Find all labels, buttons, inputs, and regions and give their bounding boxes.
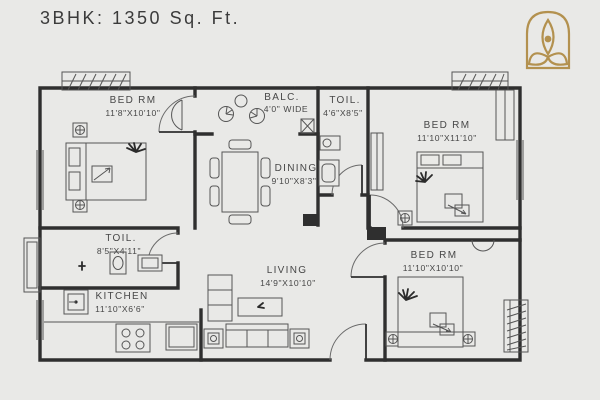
floorplan-page: 3BHK: 1350 Sq. Ft. — [0, 0, 600, 400]
bed-icon — [66, 143, 146, 200]
sink-icon — [64, 290, 88, 314]
wardrobe — [496, 90, 514, 140]
room-dims-dining: 9'10"X8'3" — [271, 176, 316, 186]
room-dims-kitchen: 11'10"X6'6" — [95, 304, 145, 314]
wardrobe — [371, 133, 383, 190]
room-dims-living: 14'9"X10'10" — [260, 278, 316, 288]
washbasin-icon — [138, 255, 162, 271]
doors — [148, 96, 403, 360]
room-label-bedroom-2: BED RM — [424, 120, 471, 131]
tap-icon — [79, 262, 85, 270]
tv-unit — [208, 275, 232, 321]
coffee-table-icon — [238, 298, 282, 316]
sofa-icon — [226, 324, 288, 347]
washbasin-icon — [320, 136, 340, 150]
room-label-toilet-2: TOIL. — [105, 233, 136, 244]
side-table — [290, 329, 309, 348]
floor-plan: BED RM 11'8"X10'10" BALC. 4'0" WIDE TOIL… — [0, 0, 600, 400]
room-label-bedroom-3: BED RM — [411, 250, 458, 261]
room-dims-bedroom-3: 11'10"X10'10" — [403, 263, 464, 273]
bed-icon — [398, 277, 463, 347]
duct-shaft-left — [24, 238, 40, 292]
room-label-bedroom-1: BED RM — [110, 95, 157, 106]
room-label-living: LIVING — [267, 265, 308, 276]
door-main-entrance — [330, 324, 366, 360]
wardrobe — [172, 100, 182, 130]
balcony-chairs-icon — [219, 95, 265, 124]
room-dims-toilet-2: 8'5"X4'11" — [97, 246, 141, 256]
room-label-kitchen: KITCHEN — [96, 291, 149, 302]
bed-icon — [416, 152, 483, 222]
room-dims-bedroom-1: 11'8"X10'10" — [105, 108, 160, 118]
window-right-bottom — [504, 300, 528, 352]
room-dims-balcony: 4'0" WIDE — [264, 104, 308, 114]
wc-icon — [319, 160, 339, 186]
counter-appliance — [166, 324, 197, 350]
stove-icon — [116, 324, 150, 352]
side-table — [204, 329, 223, 348]
lotus-emblem-icon — [527, 12, 569, 68]
room-dims-toilet-1: 4'6"X8'5" — [323, 108, 363, 118]
door-bedroom3 — [351, 243, 385, 277]
column-marker — [73, 123, 87, 137]
room-label-balcony: BALC. — [264, 92, 299, 103]
room-dims-bedroom-2: 11'10"X11'10" — [417, 133, 477, 143]
dining-table-icon — [210, 140, 270, 224]
room-label-toilet-1: TOIL. — [329, 95, 360, 106]
room-label-dining: DINING — [275, 163, 318, 174]
